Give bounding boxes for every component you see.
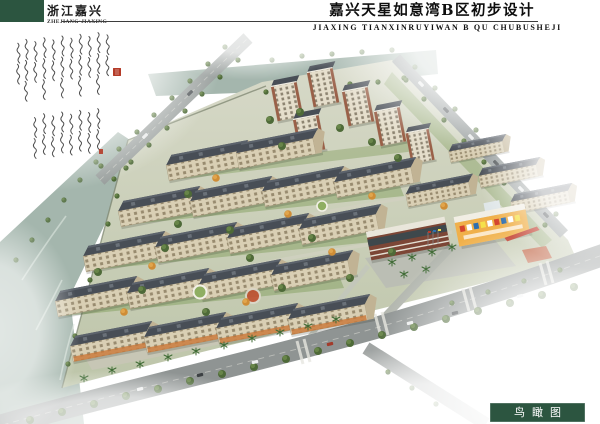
project-title-cn: 嘉兴天星如意湾B区初步设计	[313, 4, 535, 19]
view-label-box: 鸟瞰图	[490, 403, 585, 422]
view-label: 鸟瞰图	[507, 407, 568, 418]
logo-block	[0, 0, 44, 22]
region-label-cn: 浙江嘉兴	[47, 5, 107, 17]
presentation-board: 浙江嘉兴 ZHEJIANG·JIAXING 嘉兴天星如意湾B区初步设计 JIAX…	[0, 0, 600, 424]
project-title-block: 嘉兴天星如意湾B区初步设计 JIAXING TIANXINRUYIWAN B Q…	[313, 4, 562, 32]
region-label: 浙江嘉兴 ZHEJIANG·JIAXING	[47, 5, 107, 25]
aerial-rendering	[0, 0, 600, 424]
project-title-en: JIAXING TIANXINRUYIWAN B QU CHUBUSHEJI	[313, 24, 562, 32]
